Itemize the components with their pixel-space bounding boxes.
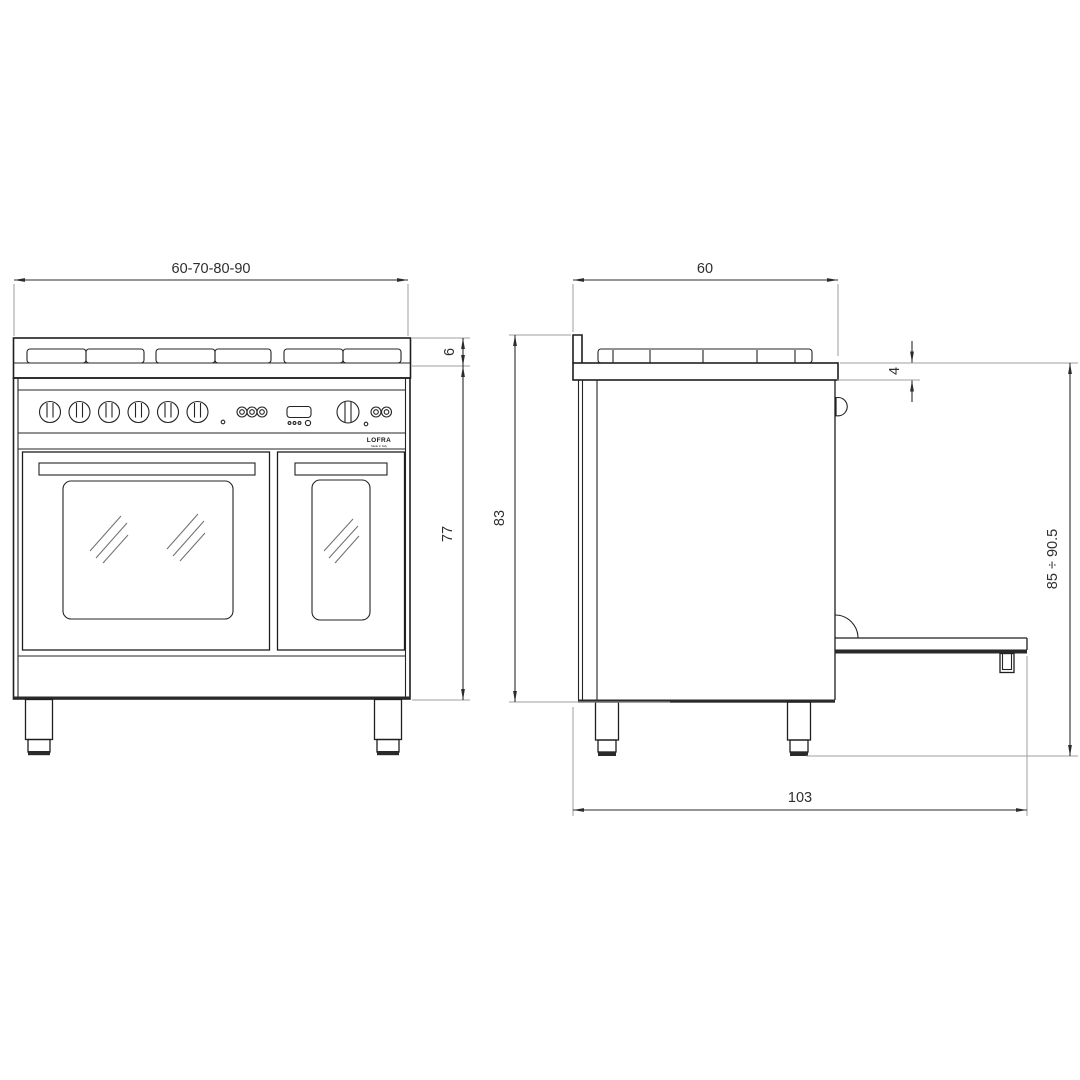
dim-body-height-label: 77: [440, 526, 456, 542]
page-background: [0, 0, 1080, 1080]
dim-overall-height-label: 85 ÷ 90.5: [1045, 529, 1061, 589]
dim-hob-height-label: 6: [442, 348, 458, 356]
body-bottom-edge: [14, 697, 411, 700]
brand-tagline: Made in Italy: [371, 444, 387, 448]
technical-drawing-canvas: LOFRA Made in Italy: [0, 0, 1080, 1080]
dim-worktop-thickness-label: 4: [887, 367, 903, 375]
dim-depth-door-open-label: 103: [788, 790, 812, 806]
dim-front-width-label: 60-70-80-90: [172, 261, 251, 277]
dim-side-depth-label: 60: [697, 261, 713, 277]
dim-back-height-label: 83: [492, 510, 508, 526]
open-door-inner-face: [835, 651, 1027, 654]
brand-logo: LOFRA: [367, 437, 391, 444]
